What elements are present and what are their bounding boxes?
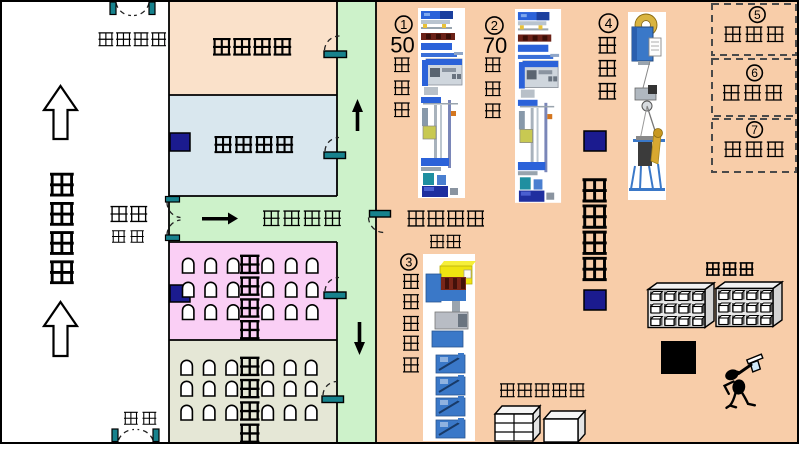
svg-text:1: 1 — [400, 17, 407, 32]
svg-text:3: 3 — [405, 256, 412, 270]
svg-text:6: 6 — [751, 66, 758, 80]
svg-text:5: 5 — [754, 8, 761, 22]
svg-text:2: 2 — [491, 18, 498, 33]
svg-text:7: 7 — [751, 123, 758, 137]
svg-text:50: 50 — [390, 33, 414, 58]
svg-text:4: 4 — [605, 15, 613, 31]
svg-text:70: 70 — [483, 33, 507, 58]
